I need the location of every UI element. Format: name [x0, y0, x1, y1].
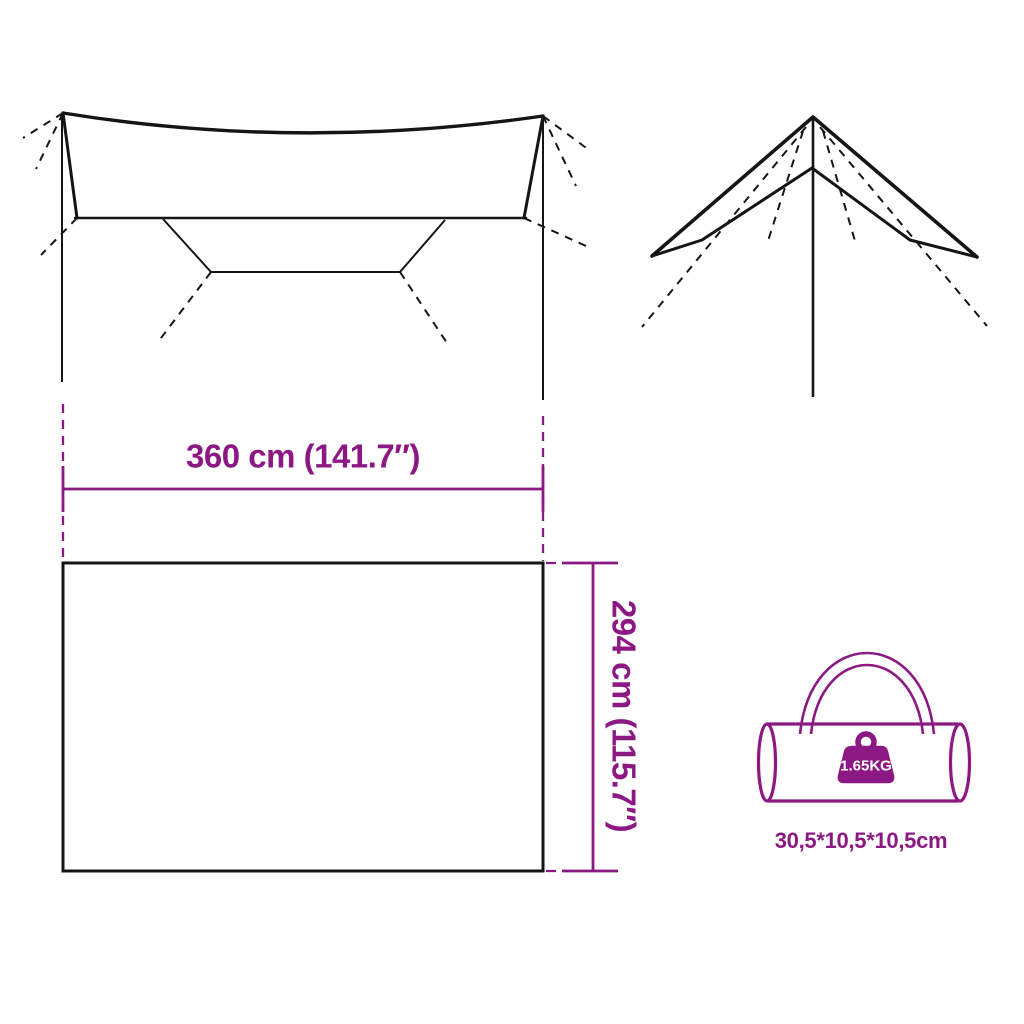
tarp-pitched-view — [642, 117, 987, 397]
carry-bag-illustration — [759, 653, 970, 801]
tarp-footprint-rectangle — [63, 563, 543, 871]
canopy-left-edge — [63, 113, 77, 218]
pitched-guy-line-dashes — [642, 127, 987, 327]
bag-size-label: 30,5*10,5*10,5cm — [775, 828, 948, 854]
height-dimension-label: 294 cm (115.7″) — [608, 600, 641, 832]
bag-right-end-cap — [951, 724, 970, 801]
product-dimension-diagram: 360 cm (141.7″) 294 cm (115.7″) 1.65KG 3… — [0, 0, 1024, 1024]
weight-label: 1.65KG — [840, 758, 892, 775]
ridge-outer-edge — [652, 117, 977, 257]
canopy-right-edge — [524, 116, 543, 218]
guy-line-dashes — [23, 113, 589, 343]
bag-left-end-cap — [759, 724, 776, 801]
diagram-artwork — [0, 0, 1024, 1024]
tarp-flat-view — [23, 113, 589, 400]
height-dimension-tick-stubs — [546, 563, 556, 871]
width-dimension-label: 360 cm (141.7″) — [186, 440, 420, 473]
canopy-top-edge — [63, 113, 543, 133]
center-panel-outline — [163, 219, 445, 272]
